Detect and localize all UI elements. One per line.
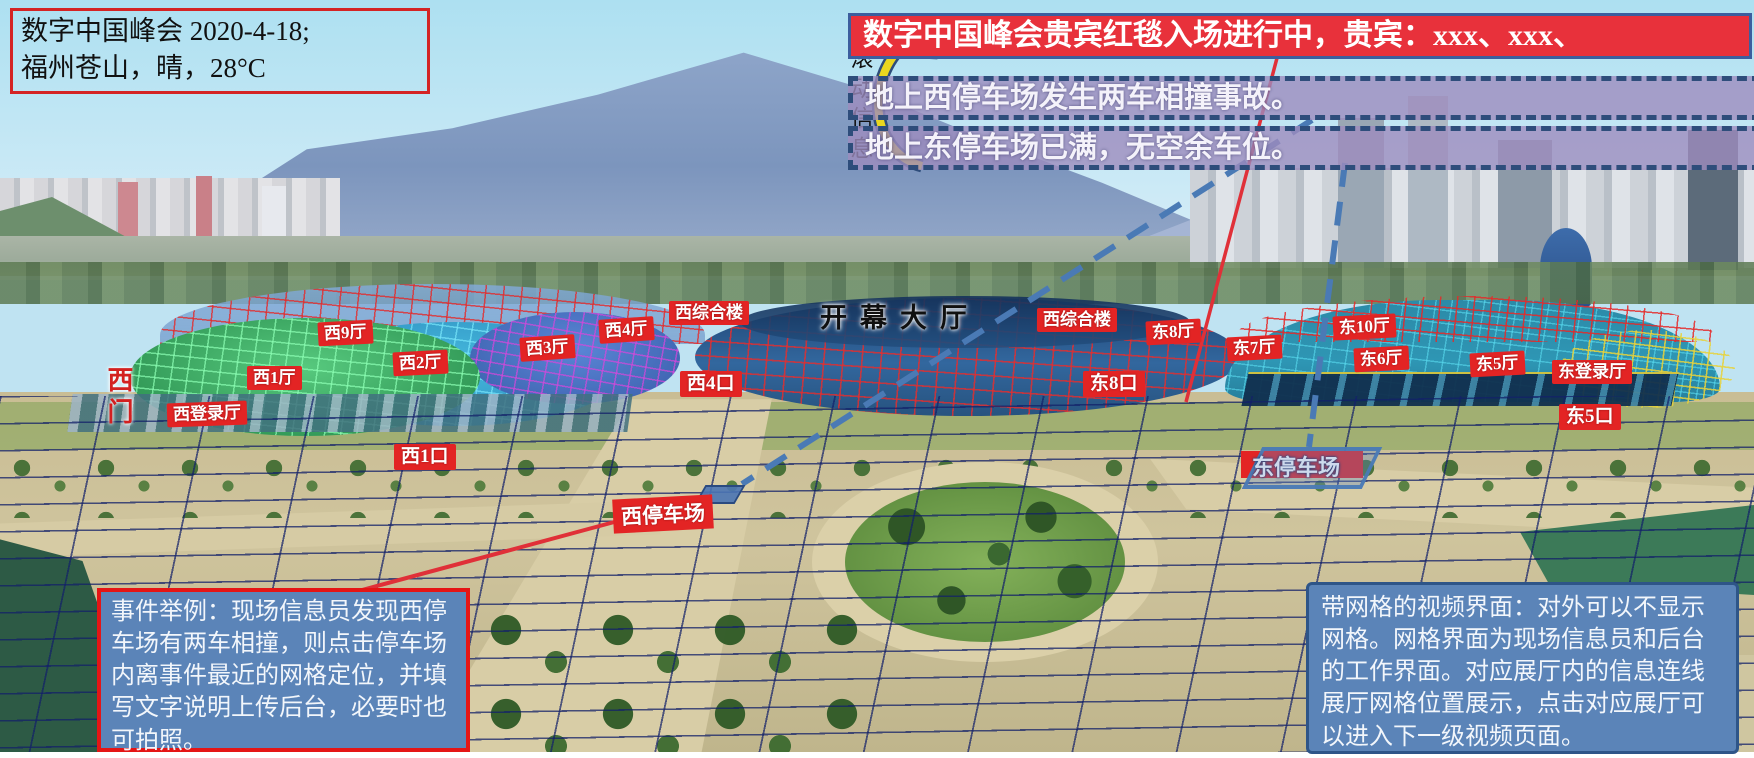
hall-label-e-login[interactable]: 东登录厅 [1552, 360, 1632, 384]
hall-label-w-complex[interactable]: 西综合楼 [669, 301, 749, 325]
ticker-msg-east-parking: 地上东停车场已满，无空余车位。 [848, 126, 1754, 170]
hall-label-w1[interactable]: 西1厅 [247, 366, 302, 390]
hall-label-w3[interactable]: 西3厅 [519, 334, 575, 361]
city-skyline-right [1190, 168, 1754, 268]
monitoring-interface: 西9厅 西2厅 西1厅 西登录厅 西3厅 西4厅 西综合楼 西4口 西1口 开幕… [0, 0, 1754, 758]
gate-label-w1[interactable]: 西1口 [394, 444, 456, 470]
west-gate-label[interactable]: 西门 [100, 366, 137, 430]
grid-interface-note: 带网格的视频界面：对外可以不显示网格。网格界面为现场信息员和后台的工作界面。对应… [1306, 582, 1739, 754]
tower [196, 176, 212, 236]
hall-label-w-login[interactable]: 西登录厅 [167, 401, 248, 427]
hall-label-w-complex-east[interactable]: 西综合楼 [1037, 308, 1117, 332]
gate-label-e5[interactable]: 东5口 [1559, 404, 1621, 430]
hall-label-e6[interactable]: 东6厅 [1353, 346, 1409, 372]
opening-hall-label[interactable]: 开幕大厅 [820, 296, 980, 335]
west-parking-label[interactable]: 西停车场 [612, 494, 714, 533]
hall-label-e10[interactable]: 东10厅 [1332, 313, 1396, 340]
tower [1408, 96, 1448, 268]
hall-label-e8[interactable]: 东8厅 [1145, 319, 1201, 345]
event-location-weather: 福州苍山，晴，28°C [21, 50, 419, 87]
vip-banner: 数字中国峰会贵宾红毯入场进行中，贵宾：xxx、xxx、 [848, 13, 1752, 59]
event-example-callout: 事件举例：现场信息员发现西停车场有两车相撞，则点击停车场内离事件最近的网格定位，… [97, 588, 470, 752]
hall-label-e5[interactable]: 东5厅 [1469, 351, 1525, 377]
event-meta-box: 数字中国峰会 2020-4-18; 福州苍山，晴，28°C [10, 8, 430, 94]
gate-label-e8[interactable]: 东8口 [1083, 371, 1145, 397]
east-parking-label[interactable]: 东停车场 [1252, 450, 1340, 482]
tower [262, 186, 286, 236]
hall-label-w2[interactable]: 西2厅 [392, 350, 448, 376]
hall-label-w4[interactable]: 西4厅 [598, 316, 654, 343]
tower [118, 182, 138, 236]
ticker-msg-west-parking: 地上西停车场发生两车相撞事故。 [848, 76, 1754, 120]
gate-label-w4[interactable]: 西4口 [680, 371, 742, 397]
event-title-date: 数字中国峰会 2020-4-18; [21, 13, 419, 50]
hall-label-w9[interactable]: 西9厅 [317, 320, 373, 346]
hall-label-e7[interactable]: 东7厅 [1226, 335, 1282, 361]
